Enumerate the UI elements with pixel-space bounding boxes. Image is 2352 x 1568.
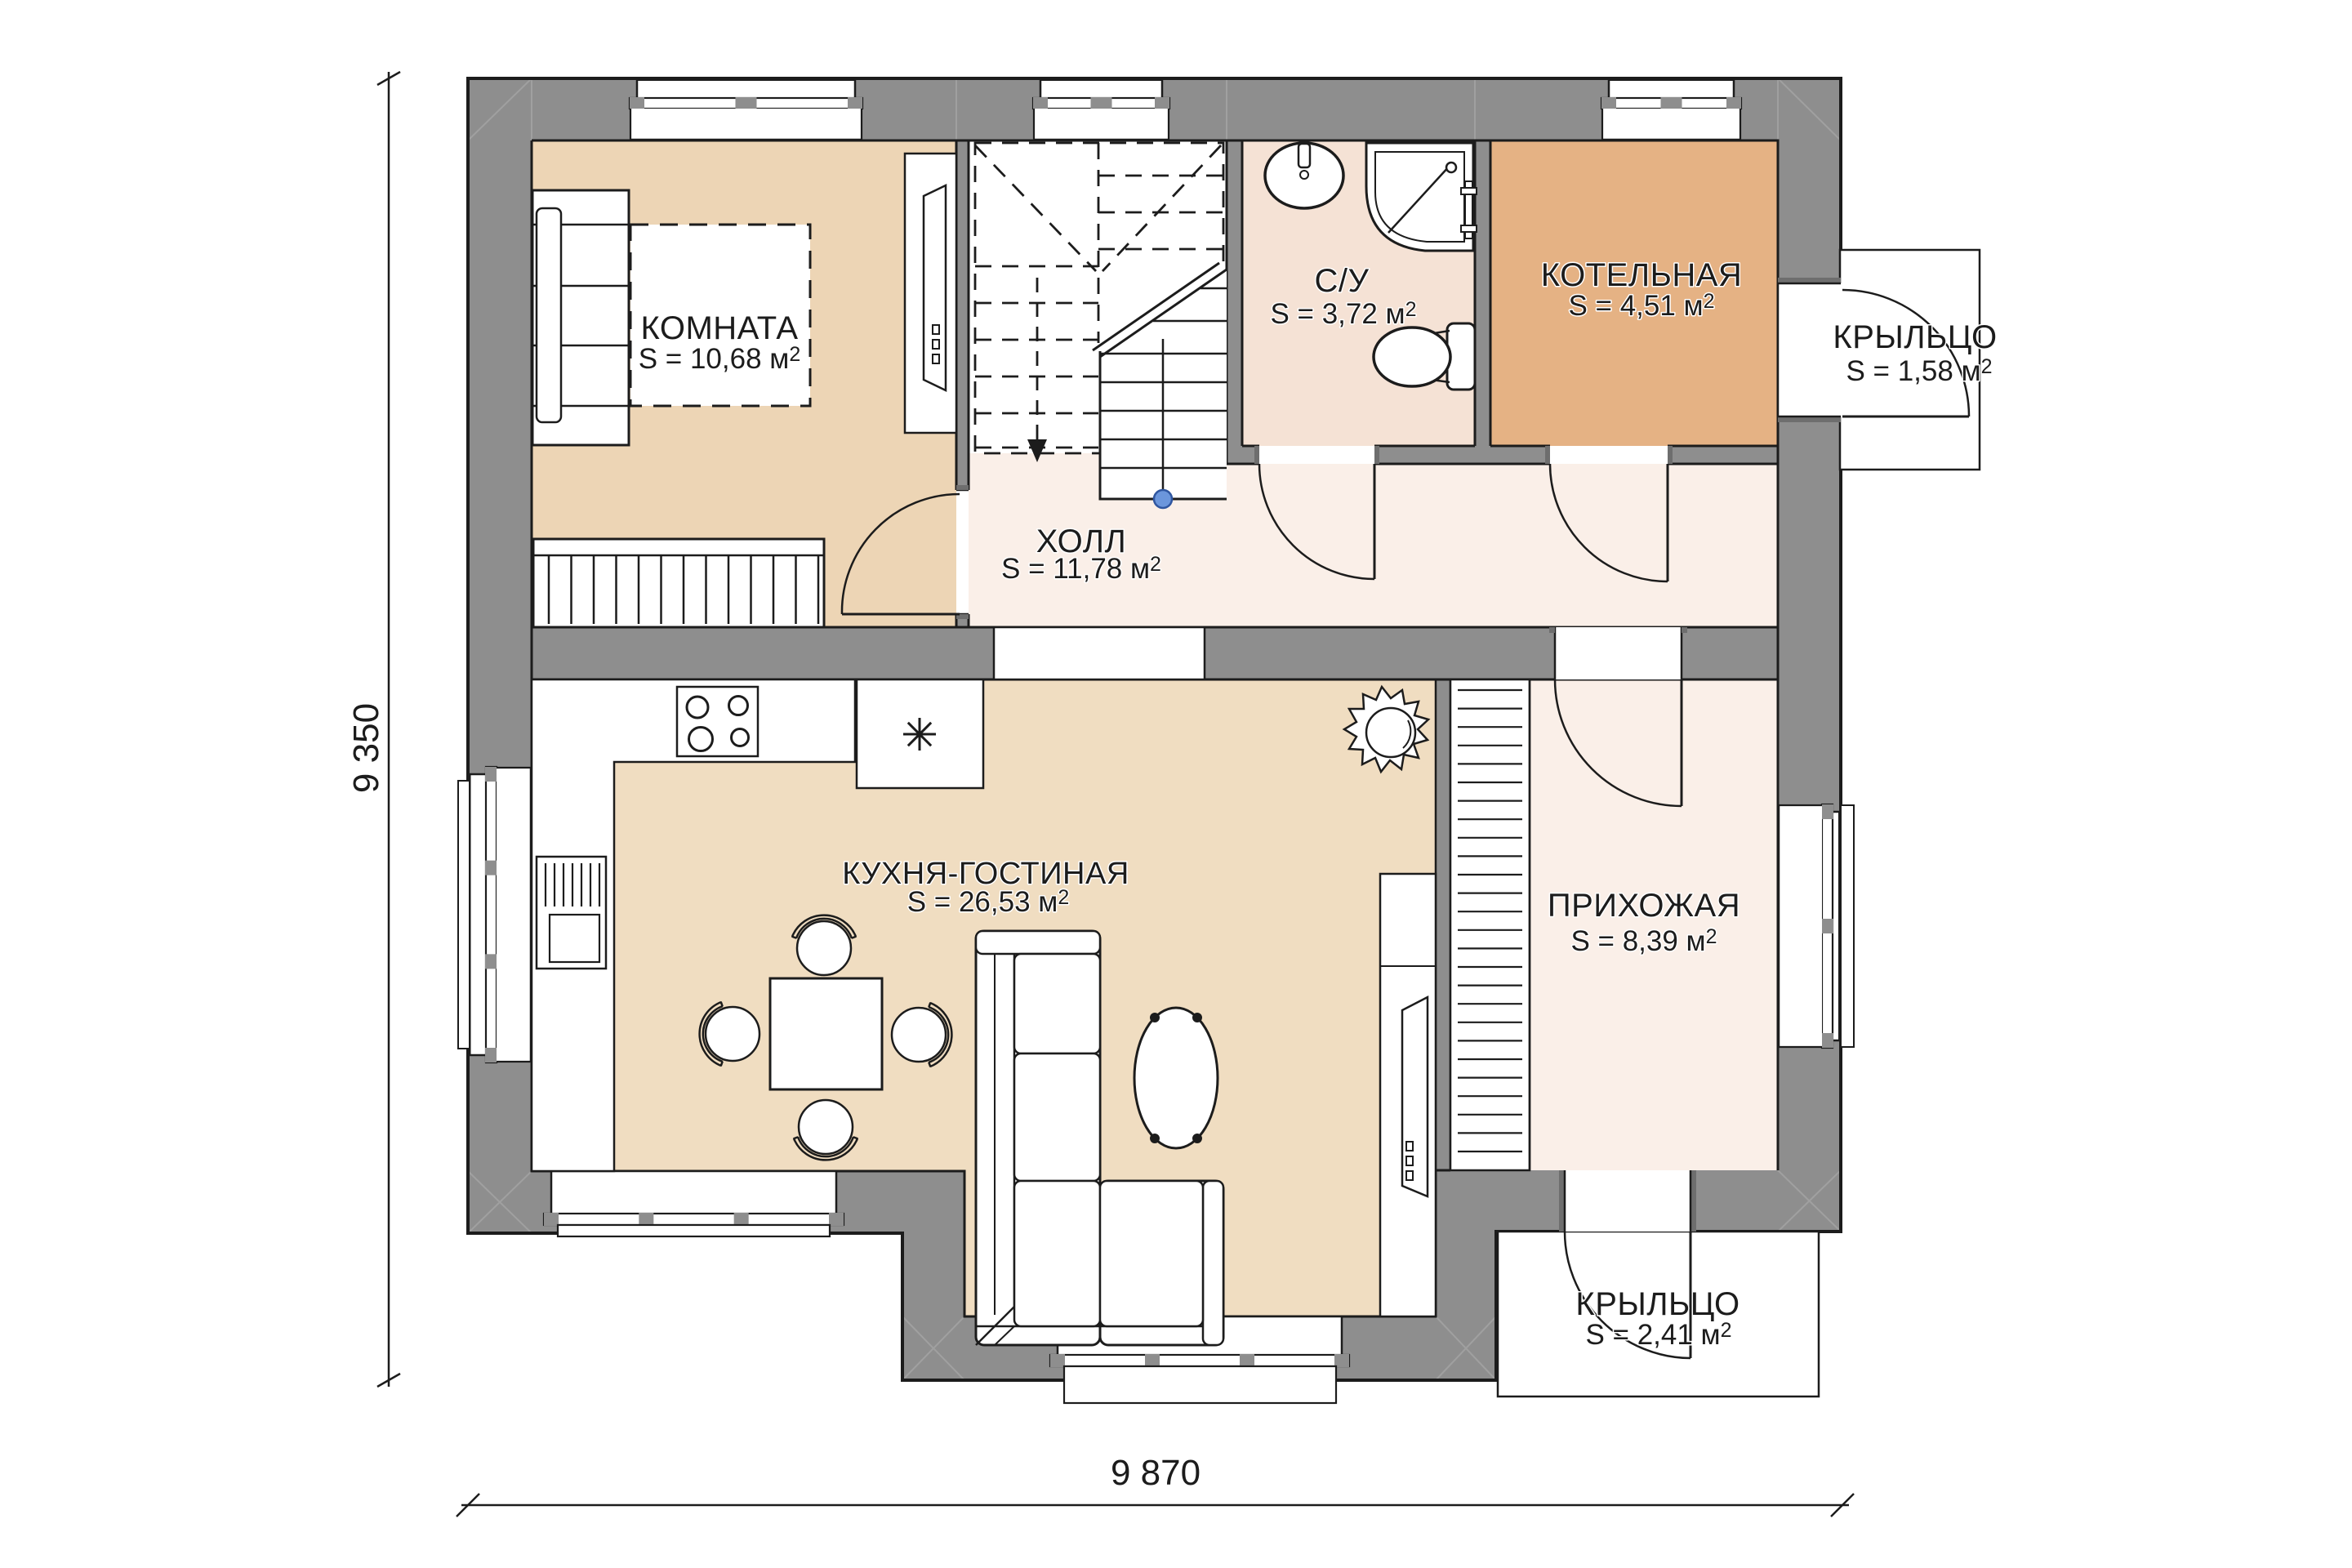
svg-text:S = 1,58 м2: S = 1,58 м2 [1846, 355, 1992, 387]
svg-text:S = 3,72 м2: S = 3,72 м2 [1270, 298, 1416, 330]
svg-text:КОТЕЛЬНАЯ: КОТЕЛЬНАЯ [1541, 257, 1743, 293]
svg-text:9 350: 9 350 [346, 703, 386, 793]
svg-text:ПРИХОЖАЯ: ПРИХОЖАЯ [1548, 888, 1740, 924]
svg-text:КРЫЛЬЦО: КРЫЛЬЦО [1575, 1286, 1739, 1322]
svg-text:S = 2,41 м2: S = 2,41 м2 [1585, 1319, 1731, 1351]
svg-text:S = 10,68 м2: S = 10,68 м2 [639, 343, 801, 375]
svg-text:S = 4,51 м2: S = 4,51 м2 [1568, 290, 1714, 322]
svg-text:КОМНАТА: КОМНАТА [640, 310, 798, 346]
svg-text:S = 26,53 м2: S = 26,53 м2 [907, 886, 1070, 918]
svg-text:S = 11,78 м2: S = 11,78 м2 [1001, 553, 1161, 585]
svg-text:КРЫЛЬЦО: КРЫЛЬЦО [1833, 319, 1997, 355]
svg-text:S = 8,39 м2: S = 8,39 м2 [1570, 925, 1717, 957]
svg-text:9 870: 9 870 [1111, 1453, 1200, 1493]
svg-text:С/У: С/У [1315, 263, 1370, 299]
